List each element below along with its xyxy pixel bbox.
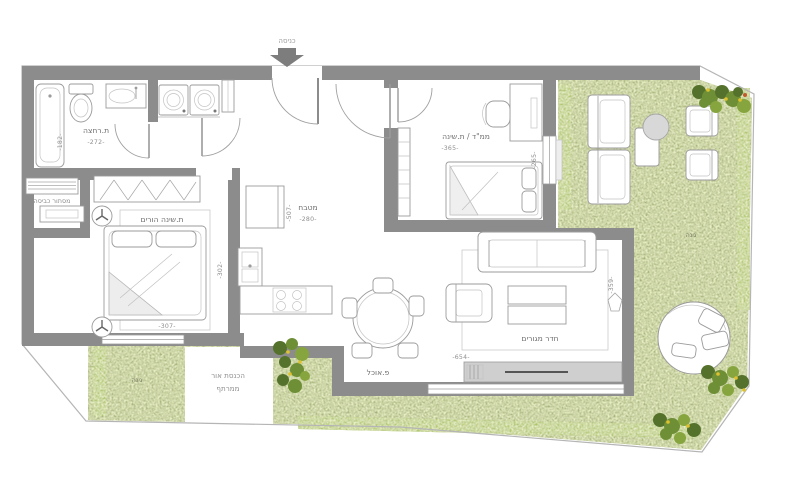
living-room-furniture — [446, 232, 622, 382]
bedside-stool-bottom — [92, 317, 112, 337]
pillow — [112, 231, 152, 247]
bathroom-label: ת.רחצה — [83, 126, 109, 135]
laundry-label: מסתור כביסה — [34, 197, 71, 205]
dining-chair — [398, 343, 418, 358]
outdoor-armchair-2 — [686, 150, 718, 180]
washer-knob-1 — [183, 110, 186, 113]
laundry-machines — [158, 80, 234, 117]
living-room-depth-dim: -359- — [608, 276, 615, 293]
entrance-opening — [272, 66, 322, 80]
desk-chair — [483, 101, 511, 127]
pillow — [522, 168, 536, 189]
wall-left — [22, 66, 34, 346]
round-daybed — [658, 302, 730, 374]
mamad-inner-door — [398, 88, 432, 122]
dining-set — [342, 278, 424, 358]
toilet — [69, 84, 93, 122]
wardrobe — [94, 176, 200, 202]
parents-bedroom-depth-dim: -302- — [217, 261, 224, 278]
bedroom-door-opening — [196, 168, 232, 180]
kitchen-counter — [240, 286, 332, 314]
wall-laundry-bottom — [22, 228, 90, 238]
bathroom-depth-dim: -182- — [57, 133, 64, 150]
kitchen-label: מטבח — [298, 203, 317, 212]
armchair — [446, 284, 492, 322]
living-room-label: חדר מגורים — [521, 334, 558, 343]
garden-left-label: גינה — [132, 376, 143, 384]
wall-mamad-left — [384, 128, 398, 232]
wall-dining-left — [332, 358, 344, 384]
hall-door — [202, 118, 240, 156]
desk — [510, 84, 542, 141]
bedside-stool-top — [92, 206, 112, 226]
fridge — [246, 186, 284, 228]
safe-room-depth-dim: -265- — [531, 151, 538, 168]
safe-room-width-dim: -365- — [441, 145, 458, 152]
bathroom-width-dim: -272- — [87, 139, 104, 146]
lightwell-label-line1: הכנסת אור — [211, 371, 245, 380]
bathtub-drain — [48, 94, 51, 97]
entrance-label: כניסה — [278, 37, 295, 45]
safe-room-furniture — [398, 84, 542, 219]
dining-table — [353, 288, 413, 348]
mamad-closet — [398, 128, 410, 216]
safe-room-label: ממ"ד / ת.שינה — [442, 132, 490, 141]
mamad-hall-door — [336, 84, 390, 138]
wall-mamad-left-stub — [384, 66, 398, 88]
window-symbol — [608, 293, 622, 311]
dining-chair — [373, 278, 393, 293]
bathroom-door — [115, 124, 149, 158]
kitchen-depth-dim: -507- — [286, 204, 293, 221]
parents-bedroom-label: ת.שינה הורים — [141, 215, 184, 224]
coffee-tables — [508, 286, 566, 324]
bathroom-sink — [106, 84, 146, 108]
wall-bath-right — [148, 80, 158, 122]
kitchen-fixtures — [238, 186, 332, 314]
kitchen-width-dim: -280- — [299, 216, 316, 223]
washer-knob-2 — [214, 110, 217, 113]
wall-mamad-bottom — [384, 220, 556, 232]
dining-chair — [342, 298, 357, 318]
dining-label: פ.אוכל — [367, 368, 390, 377]
living-room-width-dim: -654- — [452, 354, 469, 361]
double-bed — [104, 226, 206, 320]
laundry-louver — [26, 178, 78, 194]
wall-living-right — [622, 228, 634, 396]
tv-console — [464, 362, 622, 382]
entrance-door — [272, 78, 318, 124]
parents-bedroom-furniture — [92, 176, 210, 337]
pillow — [156, 231, 196, 247]
floor-plan-svg: כניסה ת.רחצה -272- -182- מסתור כביסה ת.ש… — [0, 0, 790, 480]
lightwell-label-line2: ממרתף — [216, 384, 239, 393]
pillow — [522, 191, 536, 212]
hedge-left-garden — [93, 345, 106, 416]
dining-chair — [352, 343, 372, 358]
dining-chair — [409, 296, 424, 316]
hedge-garden-right-edge — [737, 88, 750, 310]
outdoor-round-table — [643, 114, 669, 140]
single-bed — [446, 162, 542, 219]
kitchen-sink-counter — [238, 248, 262, 286]
sofa — [478, 232, 596, 272]
floor-plan-page: כניסה ת.רחצה -272- -182- מסתור כביסה ת.ש… — [0, 0, 790, 480]
entrance-arrow-icon — [270, 48, 304, 67]
wall-top — [22, 66, 700, 80]
garden-right-label: גינה — [686, 231, 697, 239]
laundry-unit — [40, 206, 84, 222]
parents-bedroom-width-dim: -307- — [158, 323, 175, 330]
mamad-window-sill — [556, 140, 562, 180]
